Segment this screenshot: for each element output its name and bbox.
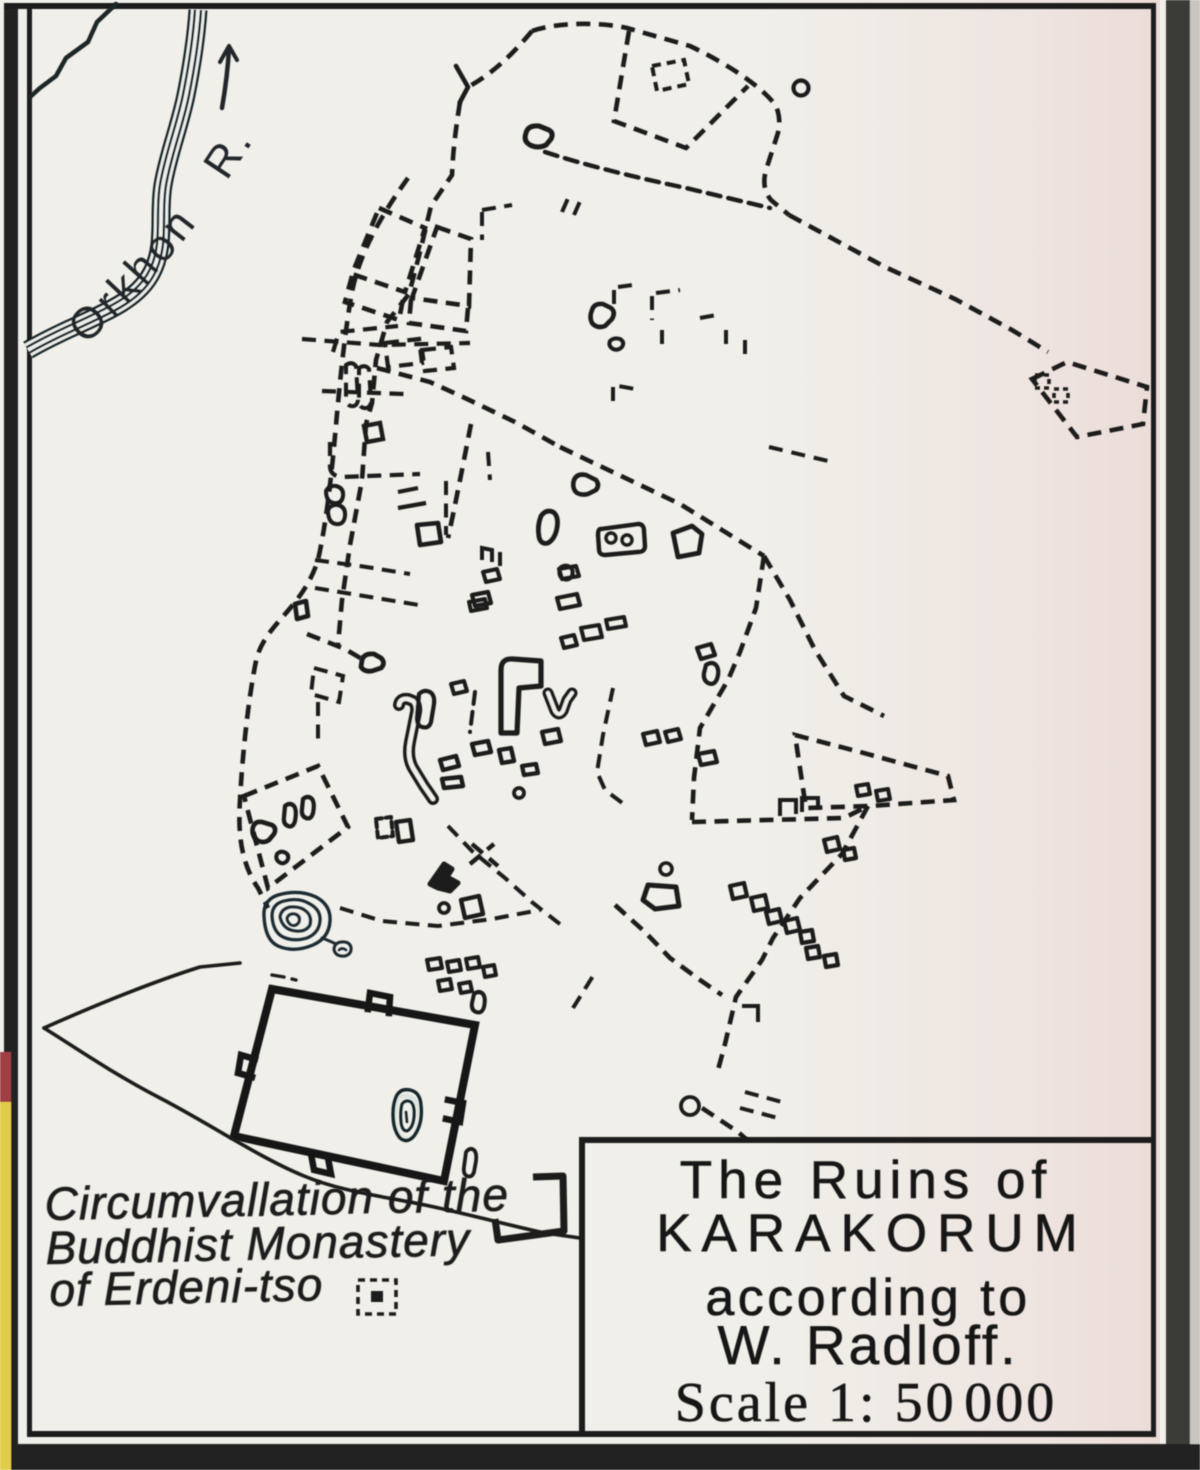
svg-text:The Ruins of: The Ruins of [680,1151,1052,1210]
svg-text:Scale 1: 50 000: Scale 1: 50 000 [675,1372,1058,1434]
svg-text:of Erdeni-tso: of Erdeni-tso [49,1258,324,1316]
svg-text:KARAKORUM: KARAKORUM [656,1204,1088,1263]
svg-text:W. Radloff.: W. Radloff. [718,1314,1019,1376]
